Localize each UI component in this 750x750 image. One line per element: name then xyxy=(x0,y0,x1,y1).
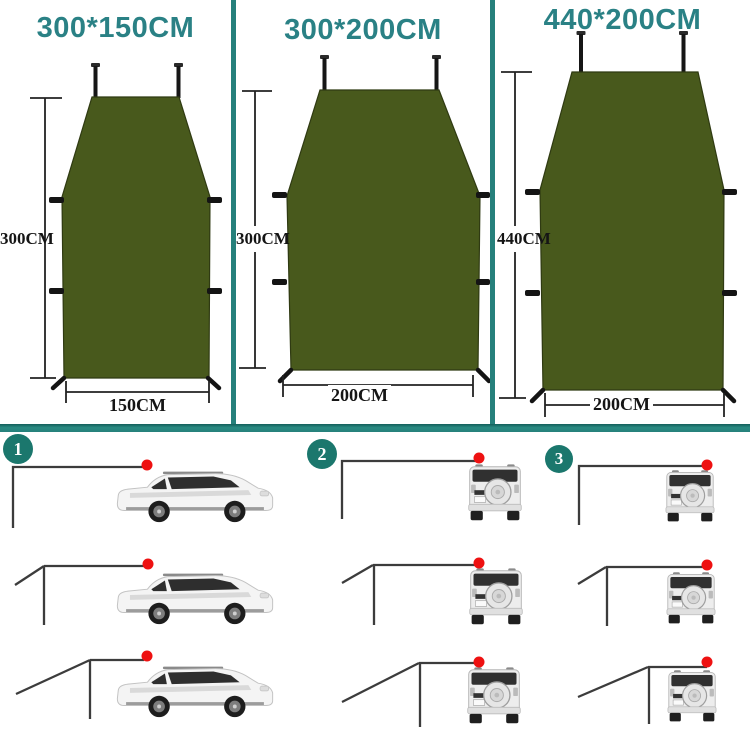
tarp-pole-icon xyxy=(577,31,689,73)
setup-1-row-3 xyxy=(16,651,273,720)
suv-side-car xyxy=(117,574,272,624)
setup-1-row-1 xyxy=(13,460,273,529)
setup-2-row-3 xyxy=(342,657,520,728)
tarp-pole-icon xyxy=(91,63,183,98)
width-dimension-label: 150CM xyxy=(66,395,209,416)
tarp-shape xyxy=(287,90,480,370)
suv-rear-car xyxy=(666,470,714,521)
tarp-shape xyxy=(540,72,724,390)
awning-frame xyxy=(342,663,479,727)
corner-stake-icon xyxy=(53,378,219,388)
roof-attach-marker xyxy=(142,460,153,471)
height-dimension-label: 300CM xyxy=(236,229,283,249)
width-dimension-label: 200CM xyxy=(590,394,653,415)
roof-attach-marker xyxy=(702,460,713,471)
suv-rear-car xyxy=(667,572,715,623)
suv-rear-car xyxy=(469,464,522,520)
setup-2-row-2 xyxy=(342,558,522,626)
roof-attach-marker xyxy=(702,657,713,668)
roof-attach-marker xyxy=(474,558,485,569)
product-infographic: 300*150CM xyxy=(0,0,750,750)
suv-side-car xyxy=(117,667,272,717)
roof-attach-marker xyxy=(474,453,485,464)
tarp-diagram-300x150 xyxy=(0,0,231,424)
setup-3-row-3 xyxy=(578,657,716,725)
roof-attach-marker xyxy=(702,560,713,571)
size-panel-300x150: 300*150CM xyxy=(0,0,231,424)
setup-3-row-2 xyxy=(578,560,715,627)
roof-attach-marker xyxy=(474,657,485,668)
size-panels-row: 300*150CM xyxy=(0,0,750,424)
setup-1-row-2 xyxy=(15,559,273,626)
size-panel-300x200: 300*200CM xyxy=(236,0,490,424)
width-dimension-label: 200CM xyxy=(328,385,391,406)
height-dimension-label: 440CM xyxy=(497,229,546,249)
awning-frame xyxy=(342,461,479,519)
setup-2-row-1 xyxy=(342,453,521,521)
height-dimension-label: 300CM xyxy=(0,229,47,249)
size-panel-440x200: 440*200CM xyxy=(495,0,750,424)
roof-attach-marker xyxy=(143,559,154,570)
suv-side-car xyxy=(117,472,272,522)
tarp-shape xyxy=(62,97,210,378)
setup-illustrations xyxy=(0,432,750,750)
roof-attach-marker xyxy=(142,651,153,662)
suv-rear-car xyxy=(468,667,521,723)
section-divider xyxy=(0,424,750,432)
awning-frame xyxy=(342,565,479,625)
corner-stake-icon xyxy=(280,370,489,381)
suv-rear-car xyxy=(668,670,716,721)
setup-3-row-1 xyxy=(579,460,714,526)
tarp-pole-icon xyxy=(320,55,441,91)
tarp-diagram-440x200 xyxy=(495,0,750,424)
setup-options-section: 1 2 3 xyxy=(0,432,750,750)
tarp-diagram-300x200 xyxy=(236,0,490,424)
suv-rear-car xyxy=(470,568,523,624)
